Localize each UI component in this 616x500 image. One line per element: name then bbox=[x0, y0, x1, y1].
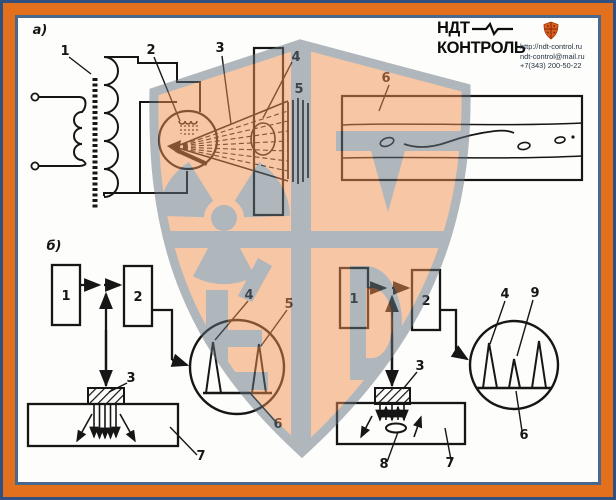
bl-specimen-label: 7 bbox=[196, 449, 205, 464]
br-defect-label: 8 bbox=[379, 457, 388, 472]
oscilloscope-screen bbox=[470, 321, 558, 409]
bl-screen-label: 6 bbox=[273, 417, 282, 432]
br-probe-label: 3 bbox=[415, 359, 424, 374]
sound-waves bbox=[77, 404, 135, 441]
section-b-label: б) bbox=[46, 239, 61, 254]
internal-defect bbox=[386, 424, 406, 433]
transducer bbox=[375, 388, 410, 404]
callout-3: 3 bbox=[215, 41, 224, 56]
br-block1-label: 1 bbox=[349, 292, 358, 307]
initial-pulse bbox=[483, 343, 497, 388]
bottom-echo bbox=[252, 344, 266, 393]
logo-shield-icon bbox=[543, 21, 559, 40]
bl-block2-label: 2 bbox=[133, 290, 142, 305]
br-specimen-label: 7 bbox=[445, 456, 454, 471]
specimen bbox=[28, 404, 178, 446]
section-a-xray-scheme bbox=[31, 48, 582, 215]
br-block2-label: 2 bbox=[421, 294, 430, 309]
bl-peak1-label: 4 bbox=[244, 288, 253, 303]
bl-probe-label: 3 bbox=[126, 371, 135, 386]
bl-peak2-label: 5 bbox=[284, 297, 293, 312]
callout-1: 1 bbox=[60, 44, 69, 59]
test-object bbox=[254, 48, 283, 215]
section-a-label: а) bbox=[33, 23, 48, 38]
contact-block: http://ndt-control.ru ndt-control@mail.r… bbox=[520, 42, 600, 71]
defect-echo bbox=[509, 359, 520, 388]
br-peak1-label: 4 bbox=[500, 287, 509, 302]
film bbox=[288, 98, 308, 184]
br-peak2-label: 9 bbox=[530, 286, 539, 301]
section-b-ultrasonic-schemes bbox=[28, 265, 558, 462]
website-link[interactable]: http://ndt-control.ru bbox=[520, 42, 600, 52]
brand-name: НДТ bbox=[437, 19, 470, 38]
callout-5: 5 bbox=[294, 82, 303, 97]
ndt-methods-diagram: а) 1 2 3 4 5 6 б) 1 2 3 4 5 6 7 1 2 3 4 … bbox=[0, 0, 616, 500]
scanned-figure-page: а) 1 2 3 4 5 6 б) 1 2 3 4 5 6 7 1 2 3 4 … bbox=[0, 0, 616, 500]
callout-leaders-bl bbox=[109, 301, 287, 455]
callout-6: 6 bbox=[381, 71, 390, 86]
initial-pulse bbox=[206, 342, 221, 393]
transformer bbox=[31, 57, 118, 210]
transducer bbox=[88, 388, 124, 404]
email-link[interactable]: ndt-control@mail.ru bbox=[520, 52, 600, 62]
br-screen-label: 6 bbox=[519, 428, 528, 443]
bl-block1-label: 1 bbox=[61, 289, 70, 304]
callout-4: 4 bbox=[291, 50, 300, 65]
pulse-icon bbox=[471, 21, 515, 37]
phone-number: +7(343) 200-50-22 bbox=[520, 61, 600, 71]
callout-2: 2 bbox=[146, 43, 155, 58]
xray-tube bbox=[159, 111, 217, 169]
bottom-echo bbox=[532, 341, 546, 388]
radiograph-image bbox=[342, 96, 582, 180]
